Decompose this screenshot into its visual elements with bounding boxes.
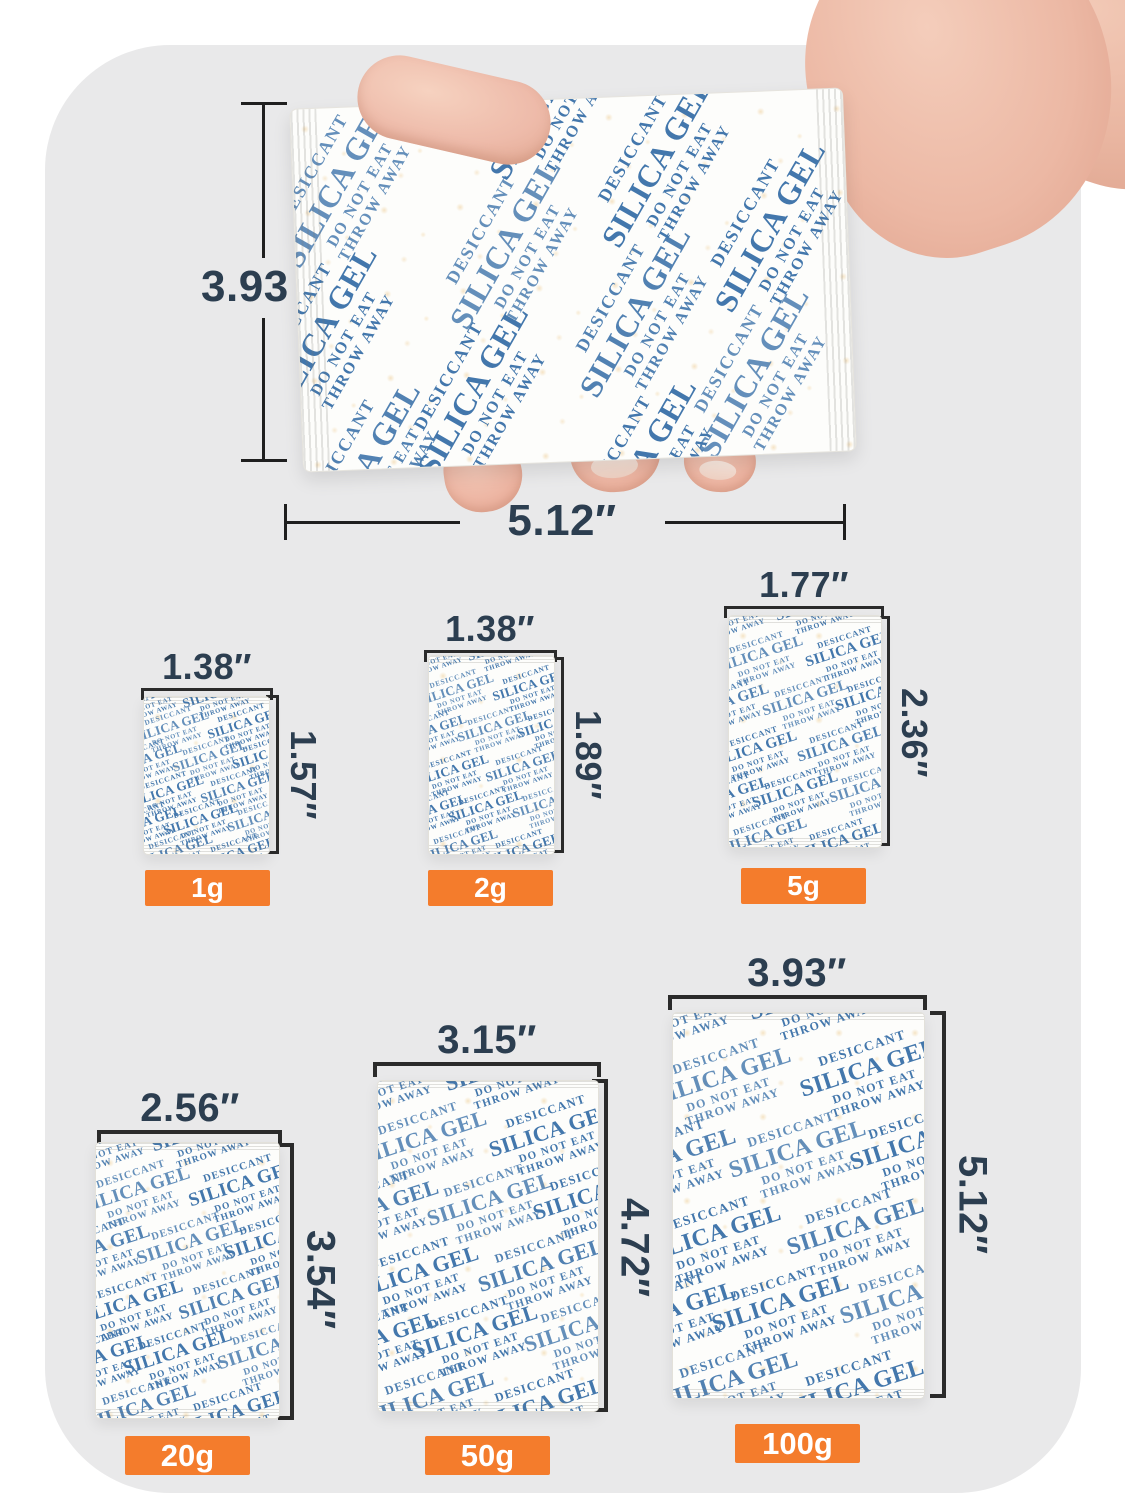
height-dimension-bracket-100g <box>930 1011 946 1398</box>
height-dimension-line <box>262 318 265 462</box>
packet-print-area: DESICCANTSILICA GELDO NOT EATTHROW AWAYD… <box>673 1013 924 1398</box>
height-dimension-cap <box>241 459 287 462</box>
width-dimension-line <box>285 521 460 524</box>
packet-print-area: DESICCANTSILICA GELDO NOT EATTHROW AWAYD… <box>144 697 269 854</box>
packet-print-area: DESICCANTSILICA GELDO NOT EATTHROW AWAYD… <box>429 656 554 854</box>
packet-image-100g: DESICCANTSILICA GELDO NOT EATTHROW AWAYD… <box>672 1012 925 1399</box>
packet-image-50g: DESICCANTSILICA GELDO NOT EATTHROW AWAYD… <box>377 1080 599 1412</box>
packet-print-area: DESICCANTSILICA GELDO NOT EATTHROW AWAYD… <box>378 1081 598 1411</box>
packet-print-area: DESICCANTSILICA GELDO NOT EATTHROW AWAYD… <box>729 616 881 847</box>
width-dimension-label-20g: 2.56″ <box>110 1086 270 1131</box>
packet-image-5g: DESICCANTSILICA GELDO NOT EATTHROW AWAYD… <box>728 615 882 848</box>
weight-badge-100g: 100g <box>735 1424 860 1463</box>
width-dimension-bracket-100g <box>668 995 927 1010</box>
packet-print-area: DESICCANTSILICA GELDO NOT EATTHROW AWAYD… <box>290 89 855 472</box>
width-dimension-label-100g: 3.93″ <box>717 951 877 996</box>
weight-badge-50g: 50g <box>425 1436 550 1475</box>
height-dimension-label-20g: 3.54″ <box>298 1180 342 1380</box>
width-dimension-line <box>665 521 845 524</box>
height-dimension-cap <box>241 102 287 105</box>
product-size-chart: DESICCANTSILICA GELDO NOT EATTHROW AWAYD… <box>0 0 1125 1500</box>
packet-image-2g: DESICCANTSILICA GELDO NOT EATTHROW AWAYD… <box>428 655 555 855</box>
weight-badge-20g: 20g <box>125 1436 250 1475</box>
fingernail <box>698 460 737 482</box>
width-dimension-label-5g: 1.77″ <box>729 564 879 606</box>
width-dimension-bracket-50g <box>373 1062 601 1077</box>
height-dimension-label-1g: 1.57″ <box>283 700 323 850</box>
packet-photo-large: DESICCANTSILICA GELDO NOT EATTHROW AWAYD… <box>289 88 857 473</box>
height-dimension-label-2g: 1.89″ <box>568 670 608 840</box>
width-dimension-label-1g: 1.38″ <box>132 646 282 688</box>
height-dimension-line <box>262 102 265 258</box>
packet-image-1g: DESICCANTSILICA GELDO NOT EATTHROW AWAYD… <box>143 696 270 855</box>
width-dimension-label-50g: 3.15″ <box>407 1018 567 1063</box>
width-dimension-cap <box>843 504 846 540</box>
width-dimension-cap <box>284 504 287 540</box>
packet-print-area: DESICCANTSILICA GELDO NOT EATTHROW AWAYD… <box>96 1143 279 1418</box>
height-dimension-bracket-20g <box>278 1143 294 1420</box>
weight-badge-5g: 5g <box>741 868 866 904</box>
height-dimension-label-50g: 4.72″ <box>612 1140 656 1355</box>
weight-badge-2g: 2g <box>428 870 553 906</box>
height-dimension-label-100g: 5.12″ <box>950 1095 994 1315</box>
width-dimension-label-2g: 1.38″ <box>415 608 565 650</box>
weight-badge-1g: 1g <box>145 870 270 906</box>
height-dimension-label-5g: 2.36″ <box>894 640 934 825</box>
packet-image-20g: DESICCANTSILICA GELDO NOT EATTHROW AWAYD… <box>95 1142 280 1419</box>
